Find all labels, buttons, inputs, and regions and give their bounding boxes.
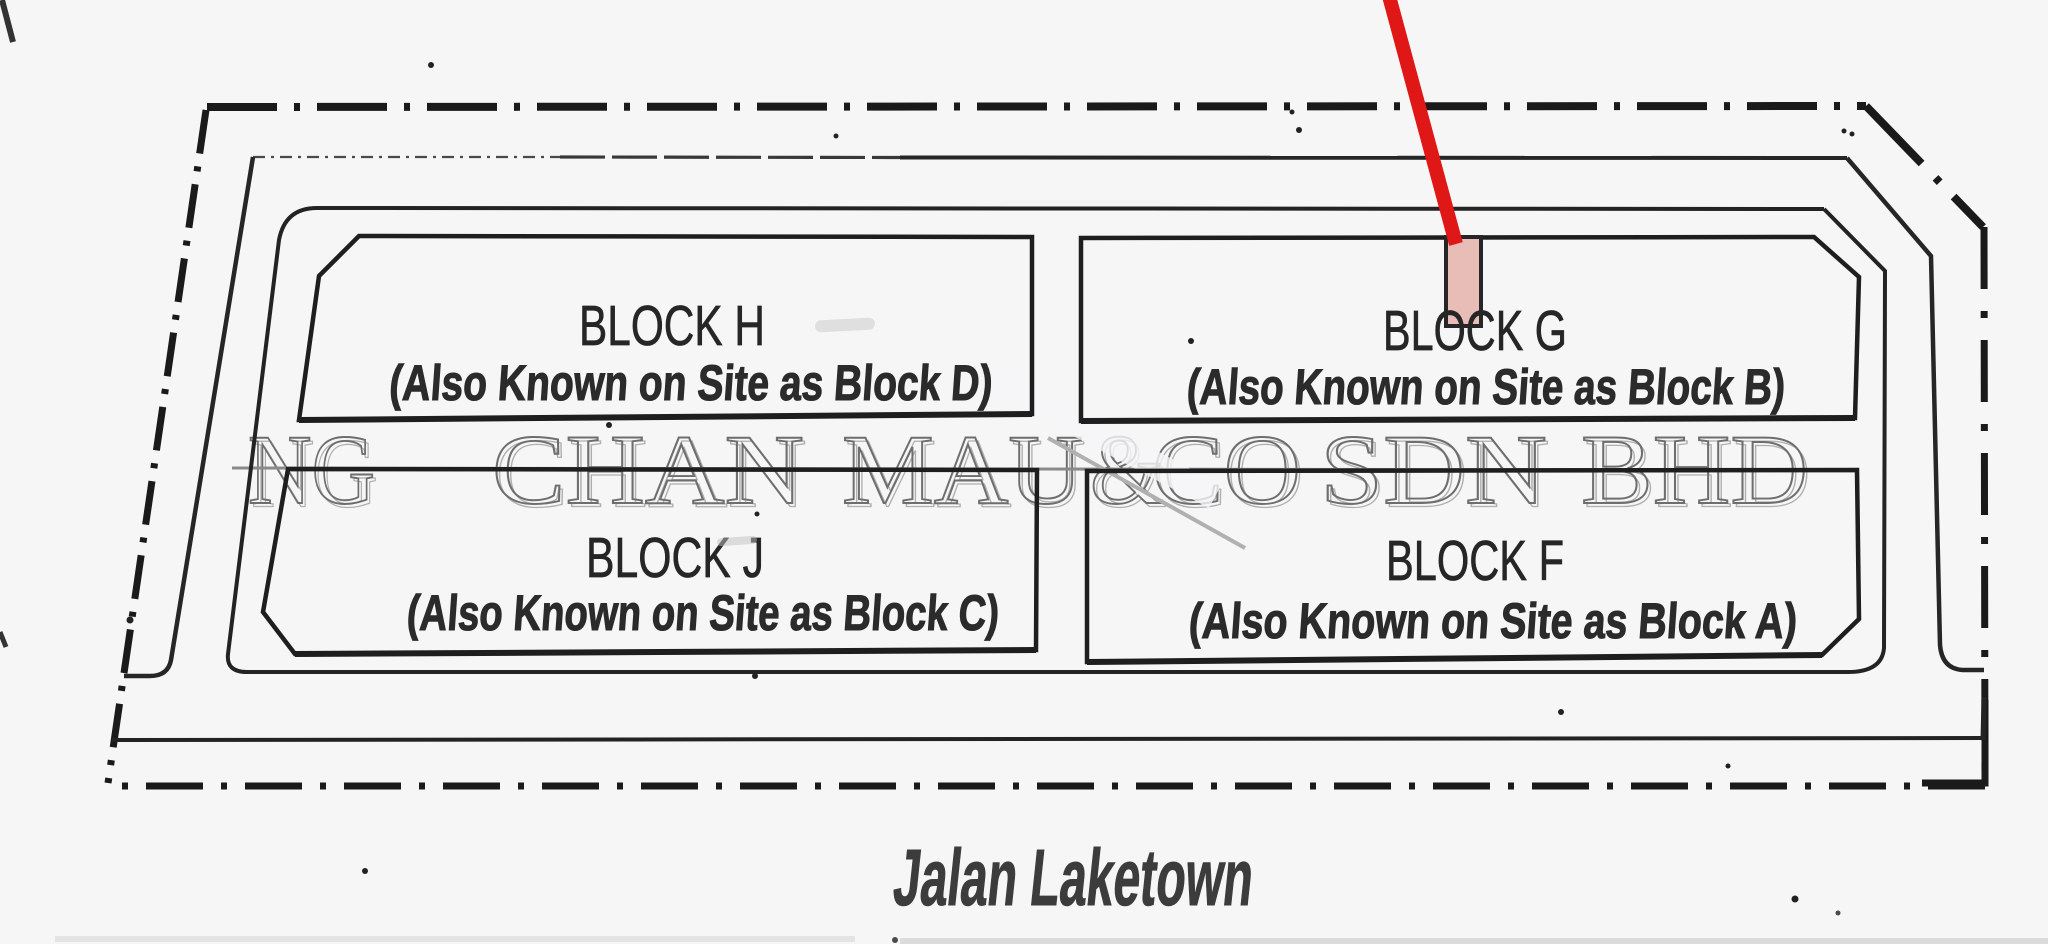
svg-text:(Also Known on Site as Block D: (Also Known on Site as Block D) <box>388 355 995 411</box>
svg-text:BLOCK J: BLOCK J <box>586 526 764 590</box>
svg-text:Jalan Laketown: Jalan Laketown <box>890 832 1258 922</box>
svg-text:BLOCK H: BLOCK H <box>579 294 765 358</box>
svg-text:BLOCK F: BLOCK F <box>1386 529 1564 593</box>
svg-text:(Also Known on Site as Block A: (Also Known on Site as Block A) <box>1187 593 1799 649</box>
svg-text:BLOCK G: BLOCK G <box>1383 299 1567 363</box>
svg-text:(Also Known on Site as Block C: (Also Known on Site as Block C) <box>405 585 1001 641</box>
svg-text:(Also Known on Site as Block B: (Also Known on Site as Block B) <box>1185 359 1787 415</box>
